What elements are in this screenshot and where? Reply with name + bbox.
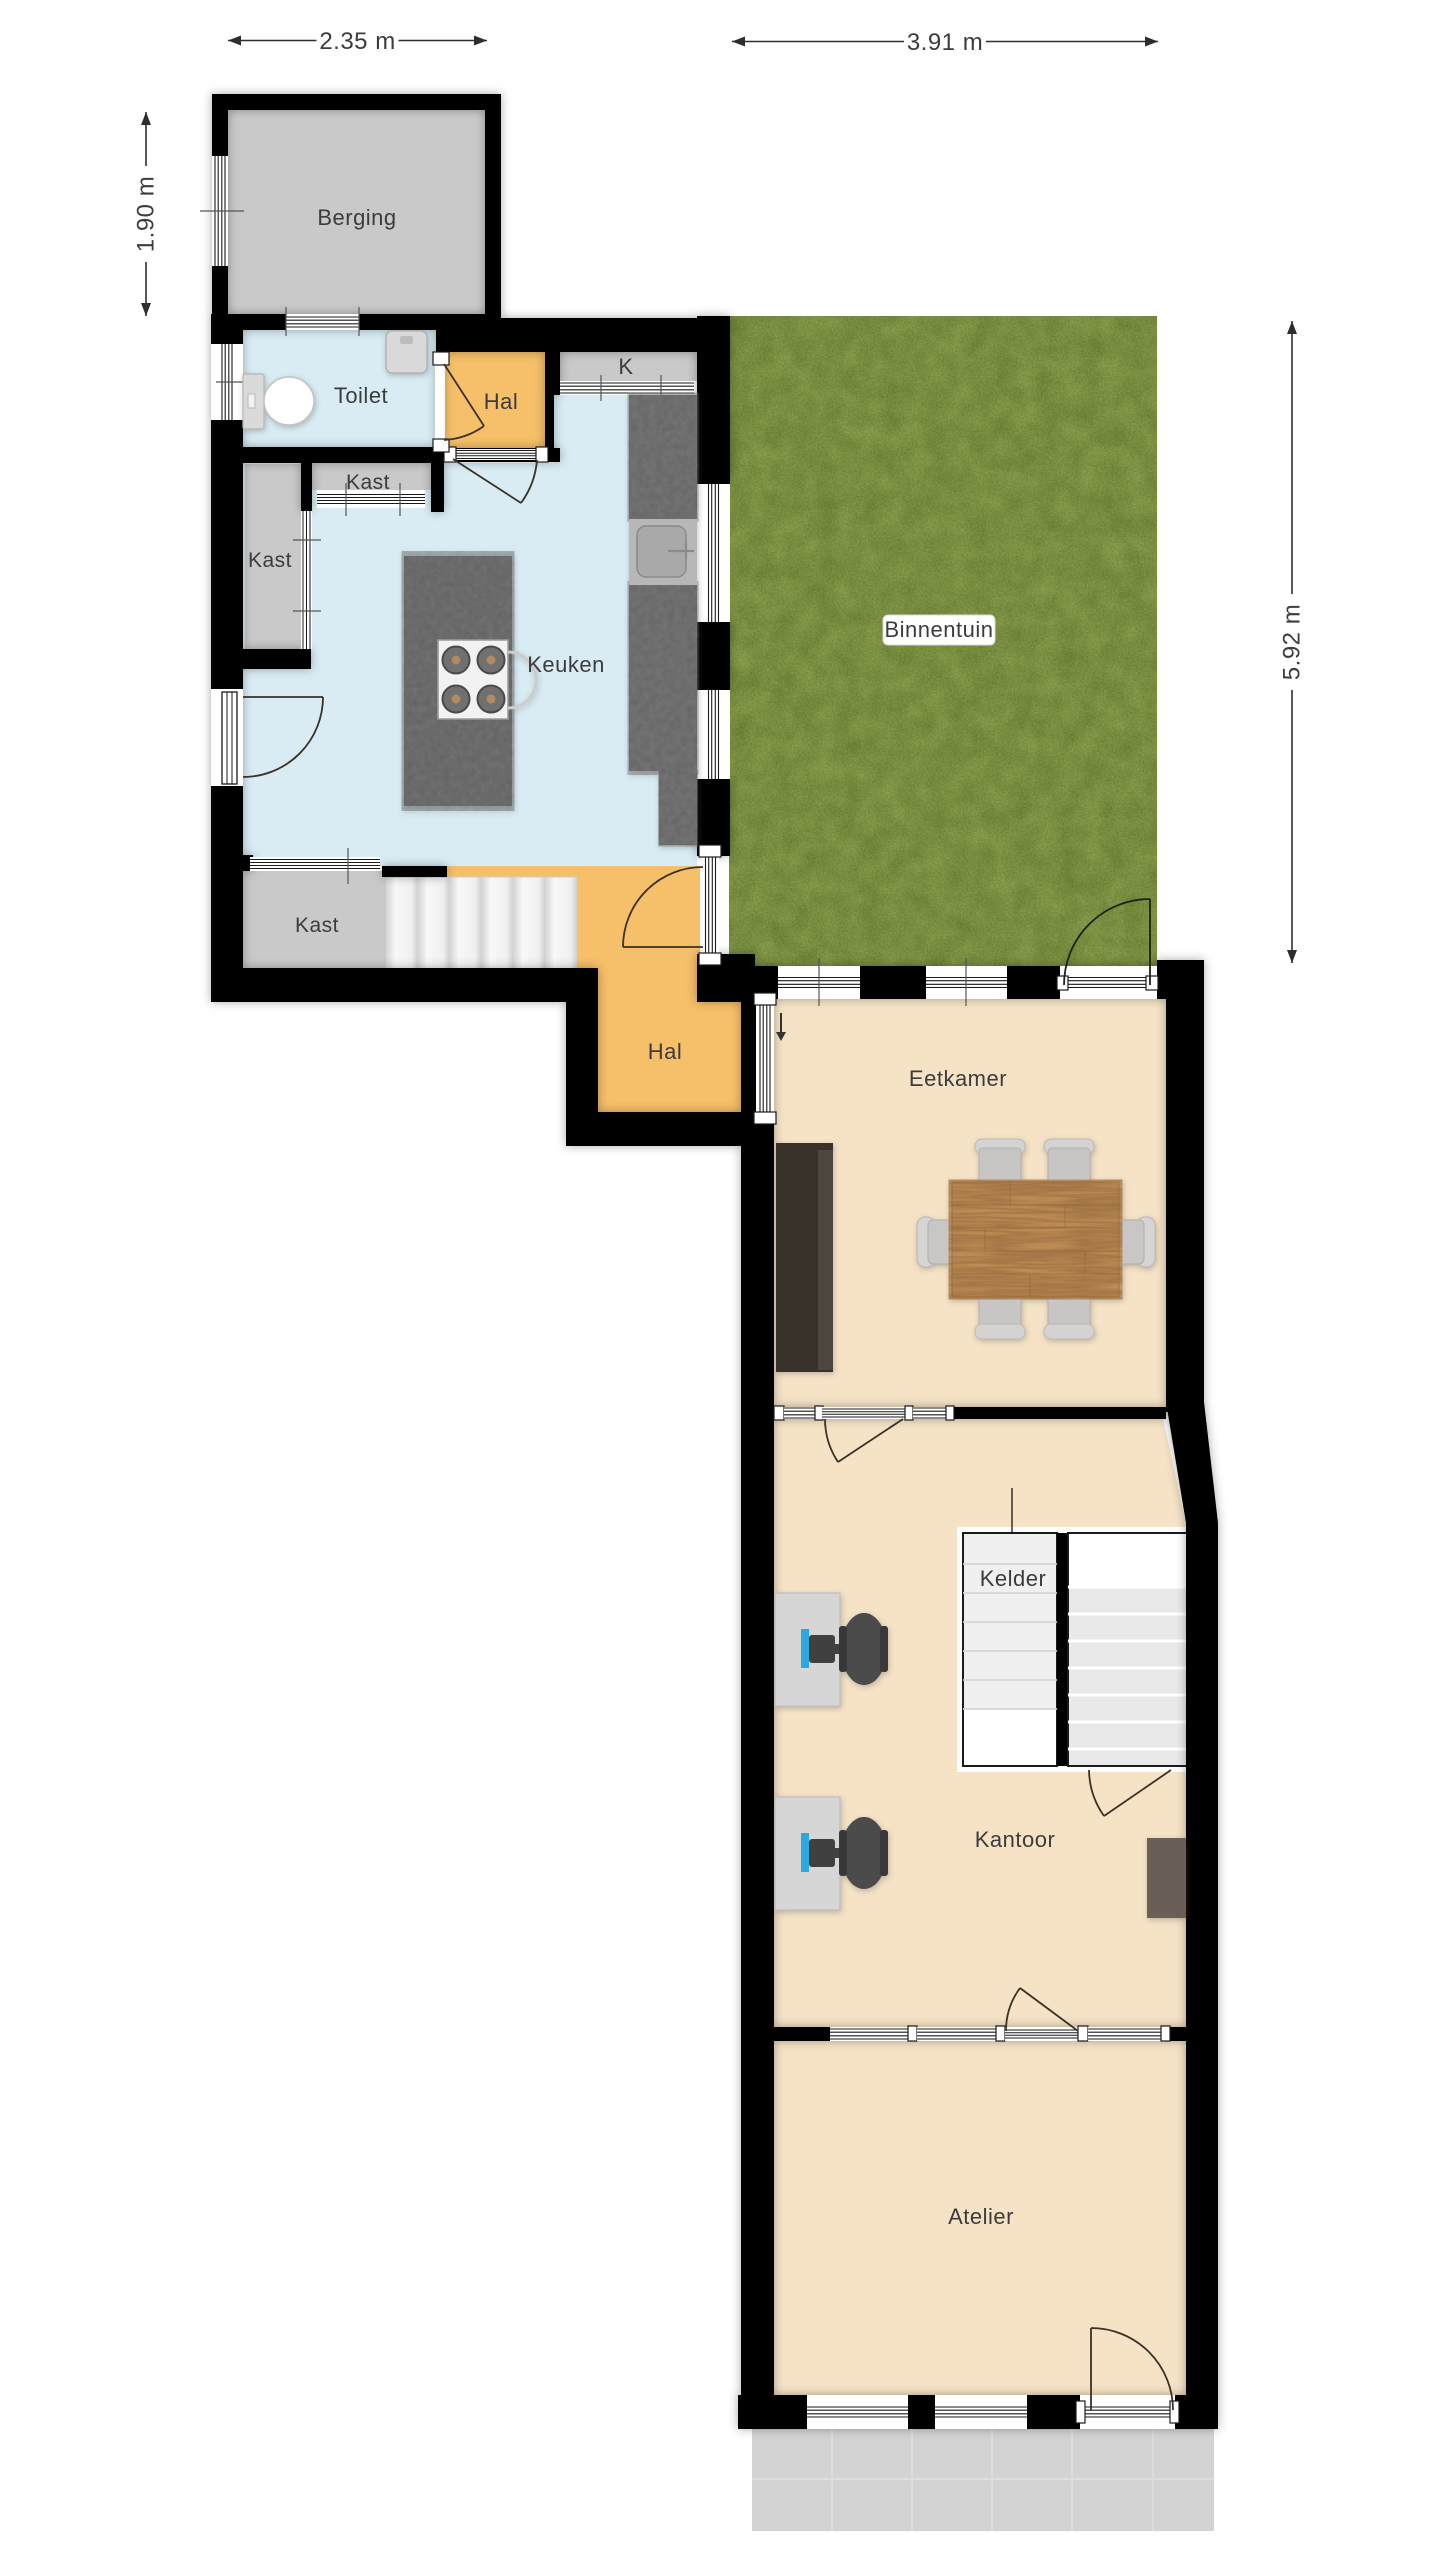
- svg-text:Keuken: Keuken: [527, 652, 605, 677]
- svg-text:Binnentuin: Binnentuin: [885, 617, 994, 642]
- svg-text:Hal: Hal: [648, 1039, 683, 1064]
- svg-text:Kelder: Kelder: [980, 1566, 1047, 1591]
- svg-text:1.90 m: 1.90 m: [133, 176, 160, 252]
- svg-text:Berging: Berging: [317, 205, 396, 230]
- svg-text:Kantoor: Kantoor: [975, 1827, 1056, 1852]
- svg-text:Toilet: Toilet: [334, 383, 388, 408]
- svg-text:Hal: Hal: [484, 389, 519, 414]
- svg-text:Kast: Kast: [248, 549, 292, 572]
- svg-text:2.35 m: 2.35 m: [319, 28, 395, 55]
- svg-text:5.92 m: 5.92 m: [1279, 604, 1306, 680]
- svg-text:3.91 m: 3.91 m: [907, 29, 983, 56]
- svg-text:Eetkamer: Eetkamer: [909, 1066, 1007, 1091]
- svg-text:Kast: Kast: [295, 914, 339, 937]
- svg-text:K: K: [618, 354, 633, 379]
- svg-text:Kast: Kast: [346, 471, 390, 494]
- svg-text:Atelier: Atelier: [948, 2204, 1014, 2229]
